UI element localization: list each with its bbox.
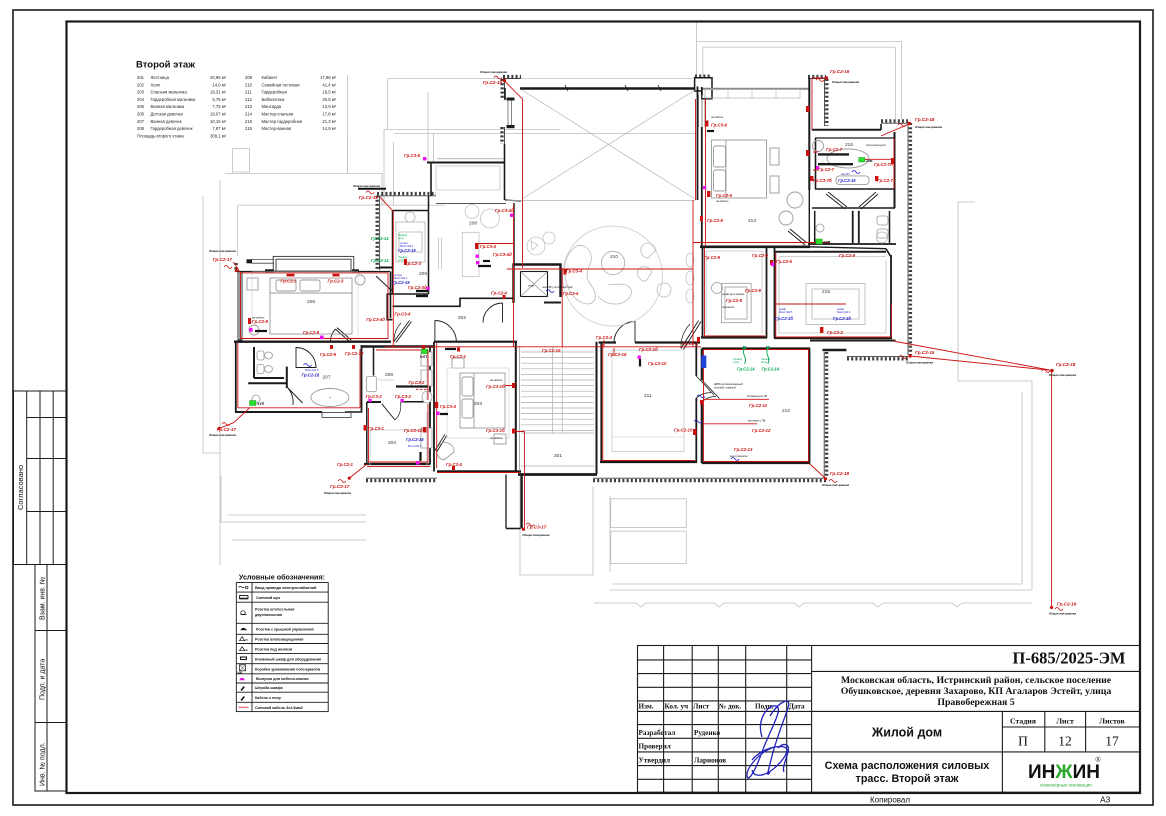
svg-text:212: 212 [782,408,790,414]
svg-text:Спальня мальчика: Спальня мальчика [151,90,188,95]
svg-text:Гр.С2-18: Гр.С2-18 [302,373,320,378]
svg-text:Гардеробная девочек: Гардеробная девочек [151,126,193,131]
svg-text:Гр.С3-4: Гр.С3-4 [480,244,497,249]
svg-text:Увлажнитель ПВ: Увлажнитель ПВ [747,394,767,398]
svg-text:Гардеробная мальчика: Гардеробная мальчика [151,97,196,102]
svg-text:Кабель к полу: Кабель к полу [255,696,282,700]
svg-text:Разработал: Разработал [639,729,676,737]
svg-text:Гр.С2-10: Гр.С2-10 [648,361,667,366]
svg-text:Гр.С2-10: Гр.С2-10 [674,428,693,433]
svg-text:полотенцесушит.: полотенцесушит. [866,144,887,147]
svg-text:Детская девочек: Детская девочек [151,112,183,117]
svg-text:Гр.С2-1б: Гр.С2-1б [775,316,793,321]
svg-text:Гр.С3-2: Гр.С3-2 [409,380,426,385]
svg-text:Гр.С2-19: Гр.С2-19 [483,80,503,85]
svg-text:Гр.С2-14: Гр.С2-14 [371,258,389,263]
svg-text:Семейная гостиная: Семейная гостиная [262,82,300,87]
svg-text:Подп. и дата: Подп. и дата [40,659,47,700]
svg-text:Гр.С2-19: Гр.С2-19 [359,195,379,200]
svg-text:Гр.С2-16: Гр.С2-16 [608,352,627,357]
svg-text:подсветка: подсветка [722,306,735,309]
svg-text:А3: А3 [1100,795,1111,805]
svg-text:Гр.С3-7б: Гр.С3-7б [813,178,832,183]
svg-text:201: 201 [137,75,145,80]
svg-text:203: 203 [474,401,482,407]
svg-text:Гр.С2-7: Гр.С2-7 [818,167,835,172]
svg-text:211: 211 [644,393,652,399]
svg-text:Инженерные инновации: Инженерные инновации [1040,783,1092,788]
svg-text:Гр.С2-9: Гр.С2-9 [303,330,320,335]
svg-text:Листов: Листов [1099,717,1124,726]
svg-text:Гр.С2-17: Гр.С2-17 [217,427,237,432]
svg-text:Motor Ш3.6: Motor Ш3.6 [837,310,851,314]
svg-text:Гр.С2-18: Гр.С2-18 [1056,362,1076,367]
svg-text:Гр.С2-19: Гр.С2-19 [392,280,410,285]
svg-text:Гр.С2-19: Гр.С2-19 [1057,602,1077,607]
svg-text:214: 214 [748,218,756,224]
svg-text:Гр.С3-4: Гр.С3-4 [563,291,579,296]
svg-text:Гр.С3-1б: Гр.С3-1б [486,428,505,433]
svg-text:на мебель: на мебель [490,436,503,440]
svg-text:2чм: 2чм [866,159,873,163]
svg-text:вытяжка+с ПВ: вытяжка+с ПВ [748,419,766,423]
svg-text:мин Вт/: мин Вт/ [841,172,850,176]
svg-text:КУП: КУП [420,355,427,359]
svg-text:205: 205 [137,104,145,109]
svg-text:Гр.С2-16: Гр.С2-16 [830,69,850,74]
svg-text:14,9 м²: 14,9 м² [212,82,226,87]
svg-text:Коробка уравнивания потенциало: Коробка уравнивания потенциалов [255,668,321,672]
svg-text:Гр.С2-9: Гр.С2-9 [320,352,337,357]
svg-text:Гр.С3-4: Гр.С3-4 [682,341,699,346]
svg-text:209: 209 [245,75,253,80]
svg-text:10,15 м²: 10,15 м² [210,119,227,124]
svg-text:Общая панорамная: Общая панорамная [1049,373,1076,377]
svg-text:Гр.С2-4: Гр.С2-4 [596,335,613,340]
svg-text:Motor Ш3.3: Motor Ш3.3 [305,368,319,372]
svg-text:Гр.С2-16: Гр.С2-16 [542,348,561,353]
svg-text:Гр.С2-7б: Гр.С2-7б [874,162,893,167]
svg-text:ИНЖИН: ИНЖИН [1028,762,1100,783]
svg-text:Мастер-ванная: Мастер-ванная [262,126,292,131]
svg-text:на мебель: на мебель [711,115,724,119]
svg-text:Второй этаж: Второй этаж [136,60,195,71]
svg-text:Ларионов: Ларионов [694,757,726,765]
svg-text:215: 215 [822,289,830,295]
svg-text:18,5 м²: 18,5 м² [322,90,336,95]
svg-text:Гр.С3-4д: Гр.С3-4д [366,317,385,322]
svg-text:Ванная девочек: Ванная девочек [151,119,182,124]
svg-text:Гр.С3-4д: Гр.С3-4д [493,252,512,257]
svg-text:ЩРВ,противопожарный: ЩРВ,противопожарный [714,382,743,386]
svg-text:Гр.С2-18: Гр.С2-18 [830,471,850,476]
svg-text:Жилой дом: Жилой дом [871,726,942,740]
svg-text:Гр.С2-12: Гр.С2-12 [345,351,364,356]
svg-text:Гр.С3-6: Гр.С3-6 [711,123,728,128]
svg-text:207: 207 [137,119,145,124]
svg-text:Мансарда: Мансарда [262,104,282,109]
svg-text:Розетка с крышкой управления: Розетка с крышкой управления [256,628,314,632]
svg-text:19,31 м²: 19,31 м² [210,90,227,95]
svg-text:Руденко: Руденко [694,729,721,737]
svg-text:Общая панорамная: Общая панорамная [1049,612,1076,616]
svg-text:штор: штор [733,361,740,364]
svg-text:210: 210 [610,254,618,260]
svg-text:Гр.С2-1: Гр.С2-1 [450,354,467,359]
svg-text:208: 208 [137,126,145,131]
svg-text:12: 12 [1058,734,1072,749]
svg-text:216: 216 [845,142,853,148]
svg-text:Клеммный шкаф для оборудования: Клеммный шкаф для оборудования [255,658,321,662]
svg-text:Гр.С2-13: Гр.С2-13 [734,447,753,452]
svg-text:Гр.С2-18: Гр.С2-18 [915,117,935,122]
svg-text:Стадия: Стадия [1010,717,1037,726]
svg-text:вентиляция/юг: вентиляция/юг [730,454,748,458]
svg-text:Мастер-гардеробная: Мастер-гардеробная [262,119,303,124]
svg-text:Общая панорамная: Общая панорамная [522,533,549,537]
svg-text:№ док.: № док. [718,703,741,711]
svg-text:Гр.С2-9: Гр.С2-9 [726,298,743,303]
svg-text:13,9 м²: 13,9 м² [322,104,336,109]
svg-text:Гардеробная: Гардеробная [262,90,287,95]
svg-text:211: 211 [245,90,252,95]
svg-text:Гр.С3-2: Гр.С3-2 [366,394,383,399]
svg-text:Гр.С2-19: Гр.С2-19 [398,248,416,253]
svg-text:21,3 м²: 21,3 м² [322,119,336,124]
svg-text:Проверил: Проверил [639,743,671,751]
svg-text:Кабинет: Кабинет [262,75,278,80]
svg-text:КУП: КУП [258,402,265,406]
svg-text:208: 208 [469,221,477,227]
svg-text:двухполюсная: двухполюсная [255,613,282,617]
svg-text:208: 208 [385,372,393,378]
svg-text:Московская область, Истринский: Московская область, Истринский район, се… [841,675,1112,686]
svg-text:Розетка под жалюзи: Розетка под жалюзи [255,648,293,652]
svg-text:силовой, этажный: силовой, этажный [714,386,736,390]
svg-text:Гр.С2-12: Гр.С2-12 [752,428,771,433]
svg-text:203: 203 [137,90,145,95]
svg-text:Лестница: Лестница [151,75,170,80]
svg-text:17,96 м²: 17,96 м² [320,75,337,80]
svg-text:204: 204 [388,440,396,446]
svg-text:Гр.С2-15: Гр.С2-15 [838,178,856,183]
svg-text:Общая панорамная: Общая панорамная [832,80,859,84]
svg-text:214: 214 [245,112,253,117]
svg-text:Гр.С3-2: Гр.С3-2 [395,394,412,399]
svg-text:20,96 м²: 20,96 м² [210,75,227,80]
svg-text:Гр.С2-6: Гр.С2-6 [776,259,793,264]
svg-text:Общая панорамная: Общая панорамная [324,491,351,495]
svg-text:Утвердил: Утвердил [639,757,671,765]
svg-text:®: ® [1095,756,1101,764]
svg-text:Гр.С2-9: Гр.С2-9 [704,255,721,260]
svg-text:Гр.С3-4: Гр.С3-4 [566,269,583,274]
svg-text:Силовой кабель 3х2,5мм2: Силовой кабель 3х2,5мм2 [255,706,303,710]
svg-text:216: 216 [245,126,253,131]
svg-text:Гр.С2-14: Гр.С2-14 [371,236,389,241]
svg-text:П-685/2025-ЭМ: П-685/2025-ЭМ [1013,649,1126,668]
svg-text:Гр.С2-17: Гр.С2-17 [330,484,350,489]
svg-text:Motor Ш3.2: Motor Ш3.2 [394,276,408,280]
svg-text:Гр.С2-7: Гр.С2-7 [877,178,894,183]
svg-text:Штроба шкафа: Штроба шкафа [255,686,284,690]
svg-text:Гр.С2-9: Гр.С2-9 [745,288,762,293]
svg-text:Обушковское, деревня Захарово,: Обушковское, деревня Захарово, КП Агалар… [841,686,1112,697]
svg-text:Ввод провода электроснабжений: Ввод провода электроснабжений [255,586,317,590]
svg-text:212: 212 [245,97,253,102]
svg-text:люк+ЛВ утепленный бокс: люк+ЛВ утепленный бокс [542,285,574,289]
svg-text:7,75 м²: 7,75 м² [212,104,226,109]
svg-text:Розетка штепсельная: Розетка штепсельная [255,608,294,612]
svg-text:Гр.С2-3: Гр.С2-3 [281,279,298,284]
svg-text:206: 206 [307,299,315,305]
svg-text:Motor Ш3.1: Motor Ш3.1 [400,244,414,248]
svg-text:Гр.С2-1б: Гр.С2-1б [833,316,851,321]
svg-text:Гр.С2-2: Гр.С2-2 [827,330,844,335]
svg-text:Правобережная 5: Правобережная 5 [937,697,1014,708]
svg-text:штор: штор [761,361,768,364]
svg-text:Условные обозначения:: Условные обозначения: [239,573,325,582]
svg-text:202: 202 [137,82,145,87]
svg-text:Гр.С3-6: Гр.С3-6 [404,153,421,158]
svg-text:на мебель: на мебель [716,199,729,203]
svg-text:Гр.С3-1б: Гр.С3-1б [486,384,505,389]
svg-text:Лист: Лист [693,703,710,711]
svg-text:Силовой щит: Силовой щит [256,596,281,600]
svg-text:Гр.С2-9: Гр.С2-9 [839,253,856,258]
svg-text:20,5 м²: 20,5 м² [322,97,336,102]
svg-text:лифт: лифт [528,284,535,288]
svg-text:Кол. уч: Кол. уч [665,703,689,711]
svg-text:215: 215 [245,119,253,124]
svg-text:шкаф-купе привод: шкаф-купе привод [722,292,745,296]
svg-text:17,8 м²: 17,8 м² [322,112,336,117]
svg-text:штор: штор [398,237,405,240]
svg-text:Гр.С2-15: Гр.С2-15 [406,437,424,442]
svg-text:Гр.С3-4: Гр.С3-4 [440,404,457,409]
svg-text:Гр.С2-3д: Гр.С2-3д [408,285,427,290]
svg-text:Библиотека: Библиотека [262,97,285,102]
svg-text:204: 204 [137,97,145,102]
svg-text:Гр.С2-4: Гр.С2-4 [491,291,508,296]
svg-text:Гр.С2-1д: Гр.С2-1д [404,428,423,433]
svg-text:ЩК: ЩК [238,671,243,675]
svg-text:Гр.С2-8: Гр.С2-8 [252,319,269,324]
svg-text:Общая панорамная: Общая панорамная [209,433,236,437]
svg-text:Лист: Лист [1056,717,1074,726]
svg-text:Общая панорамная: Общая панорамная [915,125,942,129]
svg-text:Ванная мальчика: Ванная мальчика [151,104,186,109]
svg-text:Общая панорамная: Общая панорамная [209,249,236,253]
svg-text:5,75 м²: 5,75 м² [212,97,226,102]
svg-text:Согласовано: Согласовано [16,465,25,510]
svg-text:Гр.С2-3: Гр.С2-3 [328,279,345,284]
svg-text:207: 207 [323,375,331,381]
svg-text:202: 202 [458,315,466,321]
svg-text:на мебель: на мебель [490,378,503,382]
svg-text:КУП: КУП [824,241,831,245]
svg-text:Копировал: Копировал [870,796,910,805]
svg-text:Гр.С2-7: Гр.С2-7 [826,147,843,152]
svg-text:Гр.С2-1б: Гр.С2-1б [639,347,658,352]
svg-text:41,4 м²: 41,4 м² [322,82,336,87]
svg-text:209: 209 [419,271,427,277]
svg-text:Motor Ш3.5: Motor Ш3.5 [779,310,793,314]
svg-text:Гр.С2-5: Гр.С2-5 [707,218,724,223]
svg-text:m: m [246,638,249,642]
svg-text:309,1 м²: 309,1 м² [210,133,227,138]
svg-text:Гр.С3-1: Гр.С3-1 [368,426,385,431]
svg-text:Гр.С2-11: Гр.С2-11 [749,403,768,408]
svg-text:Общая панорамная: Общая панорамная [822,483,849,487]
svg-text:Гр.С2-3: Гр.С2-3 [405,261,422,266]
svg-text:штор: штор [398,259,405,262]
svg-text:Гр.С2-1: Гр.С2-1 [337,462,354,467]
svg-text:Гр.С2-9: Гр.С2-9 [752,253,769,258]
svg-text:7,87 м²: 7,87 м² [212,126,226,131]
svg-text:Общая панорамная: Общая панорамная [480,70,507,74]
svg-text:Гр.С2-17: Гр.С2-17 [213,257,233,262]
svg-text:на мебель: на мебель [252,316,265,320]
svg-text:Выпуски для мебели-кнопки: Выпуски для мебели-кнопки [256,677,309,681]
svg-text:19,07 м²: 19,07 м² [210,112,227,117]
svg-text:трасс. Второй этаж: трасс. Второй этаж [856,773,959,785]
svg-text:Гр.С2-14: Гр.С2-14 [737,367,755,372]
svg-text:213: 213 [245,104,253,109]
svg-text:Площадь второго этажа: Площадь второго этажа [137,133,184,138]
svg-text:Общая панорамная: Общая панорамная [353,184,380,188]
svg-text:Гр.С3-17: Гр.С3-17 [527,525,547,530]
svg-text:Розетка влагозащищенная: Розетка влагозащищенная [255,638,303,642]
svg-text:201: 201 [554,453,562,459]
svg-text:Схема расположения силовых: Схема расположения силовых [825,760,990,772]
svg-text:Motor Ш3.4: Motor Ш3.4 [408,444,422,448]
svg-text:Гр.С2-6: Гр.С2-6 [716,193,733,198]
svg-text:Гр.С3-4: Гр.С3-4 [395,312,412,317]
svg-text:Общая панорамная: Общая панорамная [906,361,933,365]
svg-text:Инв. № подл.: Инв. № подл. [40,742,47,786]
svg-text:П: П [1018,734,1028,749]
svg-text:14,9 м²: 14,9 м² [322,126,336,131]
svg-text:Взам. инв. №: Взам. инв. № [40,577,47,620]
svg-text:Мастер-спальня: Мастер-спальня [262,112,294,117]
svg-text:210: 210 [245,82,253,87]
svg-text:Холл: Холл [151,82,161,87]
svg-text:Дата: Дата [789,703,805,711]
svg-text:Гр.С3-4д: Гр.С3-4д [495,208,514,213]
svg-text:Гр.С2-14: Гр.С2-14 [762,367,780,372]
svg-text:Изм.: Изм. [639,703,654,711]
svg-text:Гр.С2-15: Гр.С2-15 [915,350,935,355]
svg-text:17: 17 [1105,734,1119,749]
svg-text:206: 206 [137,112,145,117]
